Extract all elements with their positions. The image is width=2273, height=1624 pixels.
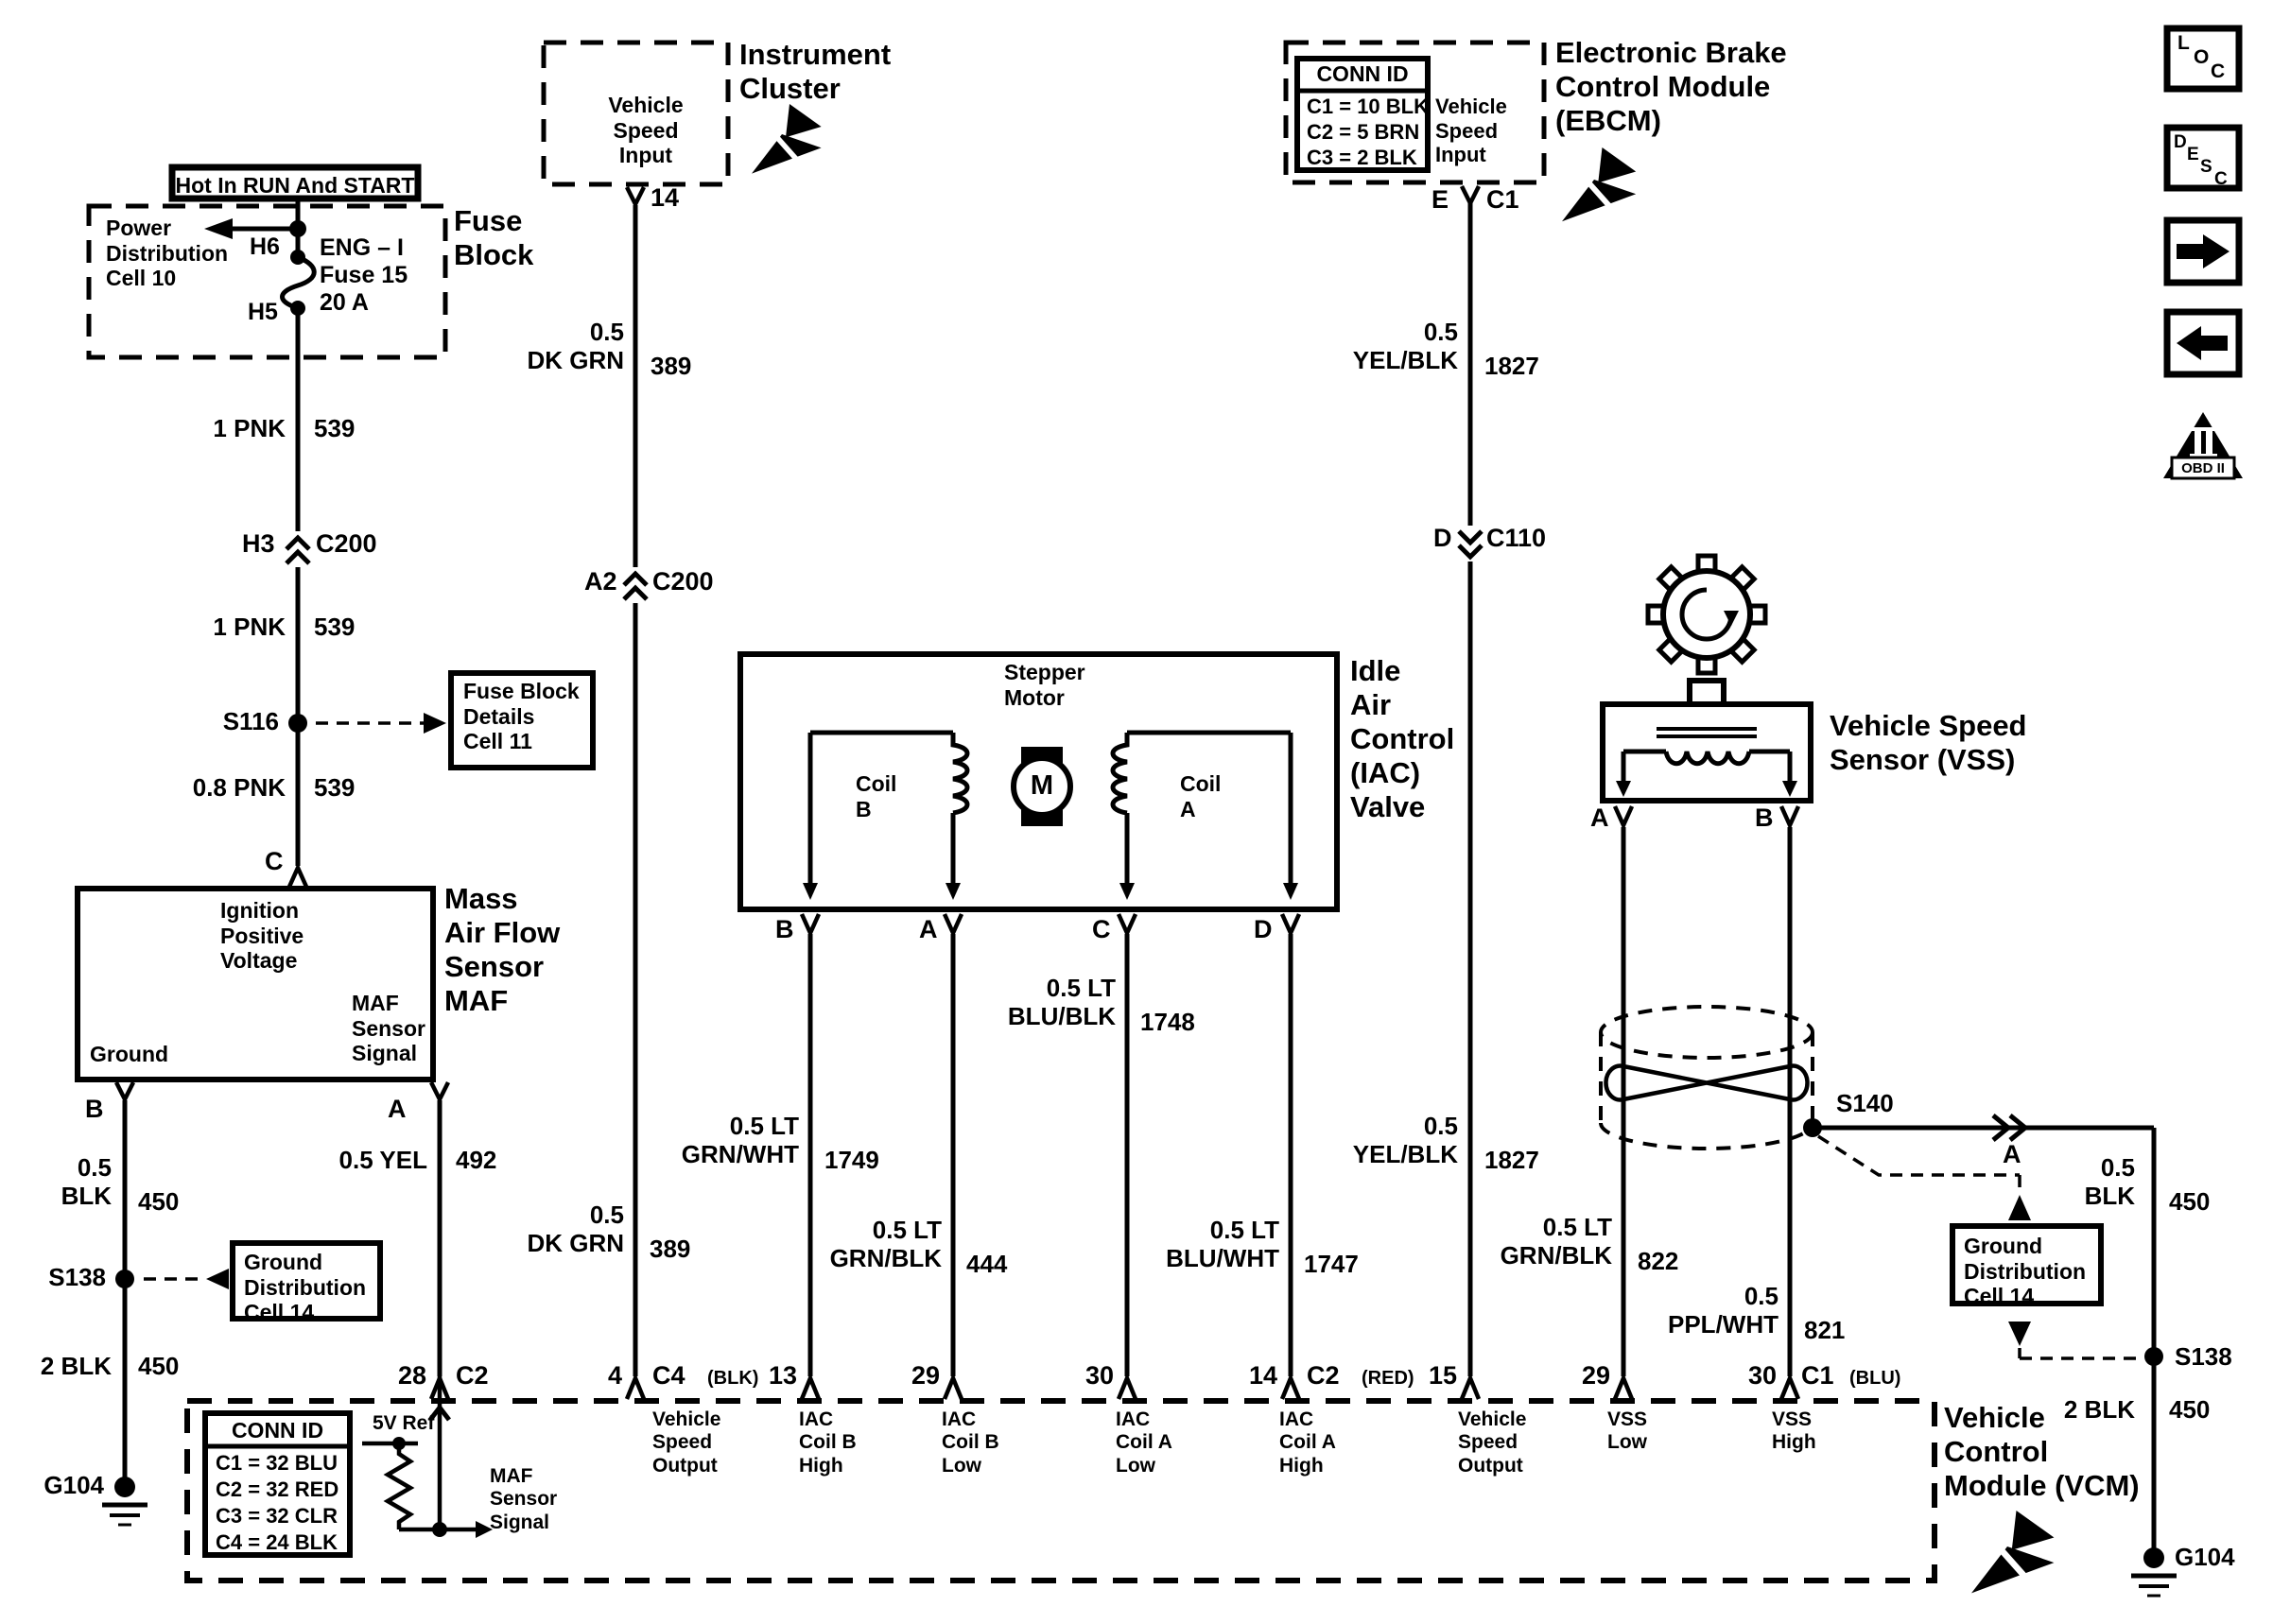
vss-pin-a: A	[1590, 803, 1609, 833]
vcm-conn-row: C2 = 32 RED	[216, 1477, 338, 1502]
esd-icon	[752, 104, 822, 174]
wire-circuit: 1749	[824, 1146, 879, 1174]
vcm-pin-conn: C4	[652, 1361, 685, 1391]
vcm-box	[187, 1401, 1935, 1581]
wire-spec: 0.5 BLK	[2085, 1153, 2135, 1210]
vcm-pin-conn: C1	[1801, 1361, 1834, 1391]
vcm-conn-row: C4 = 24 BLK	[216, 1530, 338, 1555]
iac-coil-b-label: Coil B	[856, 771, 896, 821]
splice-s138: S138	[2175, 1342, 2232, 1371]
iac-pin-a: A	[919, 915, 938, 944]
ebcm-conn-id-title: CONN ID	[1297, 61, 1428, 87]
vcm-pin-label: IAC Coil B Low	[942, 1408, 999, 1477]
ground-symbol-right	[2131, 1576, 2177, 1596]
wire-circuit: 539	[314, 414, 355, 442]
iac-name: Idle Air Control (IAC) Valve	[1350, 654, 1454, 824]
maf-pin-c: C	[265, 847, 284, 876]
wire-circuit: 389	[650, 1235, 690, 1263]
vcm-conn-row: C1 = 32 BLU	[216, 1451, 338, 1476]
wire-circuit: 450	[2169, 1395, 2210, 1424]
vcm-name: Vehicle Control Module (VCM)	[1944, 1401, 2140, 1503]
splice-s140: S140	[1836, 1089, 1894, 1117]
vcm-pin-conn: C2	[456, 1361, 489, 1391]
iac-pin-d: D	[1254, 915, 1273, 944]
ebcm-input-label: Vehicle Speed Input	[1435, 95, 1507, 167]
vss-pin-b: B	[1755, 803, 1774, 833]
vcm-5v-ref: 5V Ref	[373, 1412, 434, 1435]
maf-name: Mass Air Flow Sensor MAF	[444, 882, 560, 1018]
connector-c200: C200	[652, 567, 714, 596]
vcm-pin-note: (BLU)	[1849, 1368, 1900, 1390]
esd-icon	[1562, 147, 1636, 221]
fuse-block-name: Fuse Block	[454, 204, 533, 272]
ebcm-conn-row: C3 = 2 BLK	[1307, 146, 1417, 170]
vcm-pin-label: VSS High	[1772, 1408, 1816, 1455]
connector-c200: C200	[316, 529, 377, 559]
wire-circuit: 450	[138, 1352, 179, 1380]
maf-ignition-label: Ignition Positive Voltage	[220, 898, 304, 974]
wire-circuit: 450	[2169, 1187, 2210, 1216]
vcm-pin-num: 29	[1582, 1361, 1610, 1391]
wire-spec: 0.5 DK GRN	[527, 318, 624, 374]
hot-banner: Hot In RUN And START	[172, 173, 418, 199]
ebcm-name: Electronic Brake Control Module (EBCM)	[1555, 36, 1787, 138]
ground-dist-ref: Ground Distribution Cell 14	[244, 1250, 366, 1325]
desc-letter: C	[2214, 169, 2228, 190]
wire-spec: 1 PNK	[213, 414, 286, 442]
wire-spec: 0.5 YEL/BLK	[1353, 318, 1458, 374]
vcm-pin-label: Vehicle Speed Output	[1458, 1408, 1526, 1477]
wire-circuit: 450	[138, 1187, 179, 1216]
iac-pin-c: C	[1092, 915, 1111, 944]
shielded-twisted-pair-icon	[1601, 1007, 1813, 1149]
fuse-name: ENG – I Fuse 15 20 A	[320, 234, 408, 317]
ground-g104: G104	[43, 1471, 104, 1499]
wire-circuit: 821	[1804, 1316, 1845, 1344]
obd2-label: OBD II	[2172, 460, 2234, 476]
wire-circuit: 539	[314, 613, 355, 641]
wire-circuit: 539	[314, 773, 355, 802]
wiring-diagram-page: Hot In RUN And START Power Distribution …	[0, 0, 2273, 1624]
vcm-pin-note: (BLK)	[707, 1368, 758, 1390]
vss-gear-icon	[1648, 556, 1765, 673]
connector-d: D	[1433, 524, 1452, 553]
wire-spec: 0.5 PPL/WHT	[1668, 1282, 1778, 1339]
vcm-pin-num: 14	[1249, 1361, 1277, 1391]
ebcm-conn-c1: C1	[1486, 185, 1519, 215]
h6-terminal-label: H6	[250, 233, 280, 261]
loc-letter: L	[2178, 32, 2190, 55]
wire-spec: 0.5 BLK	[61, 1153, 112, 1210]
vcm-pin-num: 29	[911, 1361, 940, 1391]
vcm-pin-num: 28	[398, 1361, 426, 1391]
ground-dist-ref: Ground Distribution Cell 14	[1964, 1234, 2086, 1309]
ic-name: Instrument Cluster	[739, 38, 891, 106]
vcm-pin-num: 13	[769, 1361, 797, 1391]
wire-spec: 1 PNK	[213, 613, 286, 641]
maf-ground-label: Ground	[90, 1042, 168, 1067]
vss-name: Vehicle Speed Sensor (VSS)	[1830, 709, 2027, 777]
inline-connector-icons	[286, 526, 1482, 603]
desc-letter: S	[2200, 157, 2212, 178]
splice-s138: S138	[48, 1263, 106, 1291]
ic-pin-14: 14	[651, 183, 679, 213]
vcm-pin-note: (RED)	[1362, 1368, 1414, 1390]
connector-c110: C110	[1486, 524, 1546, 553]
wire-circuit: 444	[966, 1250, 1007, 1278]
ic-input-label: Vehicle Speed Input	[594, 93, 698, 168]
vcm-pin-label: Vehicle Speed Output	[652, 1408, 720, 1477]
vcm-pin-label: IAC Coil A High	[1279, 1408, 1336, 1477]
nav-icon-boxes	[2163, 28, 2243, 478]
h5-terminal-label: H5	[248, 299, 278, 326]
iac-stepper-label: Stepper Motor	[1004, 660, 1085, 710]
wire-spec: 0.5 LT GRN/BLK	[1501, 1213, 1612, 1270]
ebcm-pin-e: E	[1431, 185, 1449, 215]
wire-circuit: 822	[1638, 1247, 1678, 1275]
desc-letter: D	[2174, 132, 2187, 153]
vcm-pin-num: 15	[1429, 1361, 1457, 1391]
vss-sensor	[1603, 681, 1811, 801]
vcm-maf-signal: MAF Sensor Signal	[490, 1465, 557, 1534]
vcm-pin-conn: C2	[1307, 1361, 1340, 1391]
wire-circuit: 1747	[1304, 1250, 1359, 1278]
connector-a2: A2	[584, 567, 617, 596]
connector-h3: H3	[242, 529, 275, 559]
loc-letter: C	[2211, 60, 2225, 83]
wire-circuit: 389	[651, 352, 691, 380]
splice-s116: S116	[223, 707, 279, 735]
wire-circuit: 1827	[1484, 352, 1539, 380]
iac-coil-a-label: Coil A	[1180, 771, 1221, 821]
wire-spec: 0.5 LT GRN/BLK	[830, 1216, 942, 1272]
maf-signal-label: MAF Sensor Signal	[352, 991, 425, 1066]
vcm-pin-num: 30	[1085, 1361, 1114, 1391]
wire-spec: 0.5 YEL	[339, 1146, 427, 1174]
wire-spec: 0.8 PNK	[193, 773, 286, 802]
wire-spec: 0.5 LT BLU/BLK	[1008, 974, 1116, 1030]
wire-spec: 2 BLK	[41, 1352, 112, 1380]
vcm-conn-row: C3 = 32 CLR	[216, 1504, 338, 1529]
wire-spec: 0.5 YEL/BLK	[1353, 1112, 1458, 1168]
connector-a-right: A	[2003, 1140, 2021, 1169]
vcm-conn-id-title: CONN ID	[205, 1418, 350, 1443]
wire-spec: 0.5 LT GRN/WHT	[682, 1112, 799, 1168]
wire-circuit: 492	[456, 1146, 496, 1174]
ground-symbol-left	[102, 1505, 147, 1525]
vcm-pin-num: 30	[1748, 1361, 1777, 1391]
power-distribution-ref: Power Distribution Cell 10	[106, 216, 228, 291]
iac-pin-b: B	[775, 915, 794, 944]
vcm-pin-num: 4	[608, 1361, 622, 1391]
maf-pin-b: B	[85, 1095, 104, 1124]
ground-g104: G104	[2175, 1543, 2235, 1571]
desc-letter: E	[2187, 145, 2199, 165]
wire-circuit: 1827	[1484, 1146, 1539, 1174]
wire-circuit: 1748	[1140, 1008, 1195, 1036]
ebcm-conn-row: C1 = 10 BLK	[1307, 95, 1429, 119]
maf-pin-a: A	[388, 1095, 407, 1124]
vcm-pin-label: IAC Coil A Low	[1116, 1408, 1172, 1477]
esd-icon	[1971, 1511, 2054, 1593]
wire-spec: 0.5 DK GRN	[527, 1201, 624, 1257]
wire-spec: 0.5 LT BLU/WHT	[1166, 1216, 1279, 1272]
vcm-pin-label: VSS Low	[1607, 1408, 1647, 1455]
iac-motor-m: M	[1029, 770, 1055, 803]
ebcm-conn-row: C2 = 5 BRN	[1307, 120, 1419, 145]
fuse-details-ref: Fuse Block Details Cell 11	[463, 679, 580, 754]
vcm-pin-label: IAC Coil B High	[799, 1408, 857, 1477]
loc-letter: O	[2194, 46, 2209, 69]
